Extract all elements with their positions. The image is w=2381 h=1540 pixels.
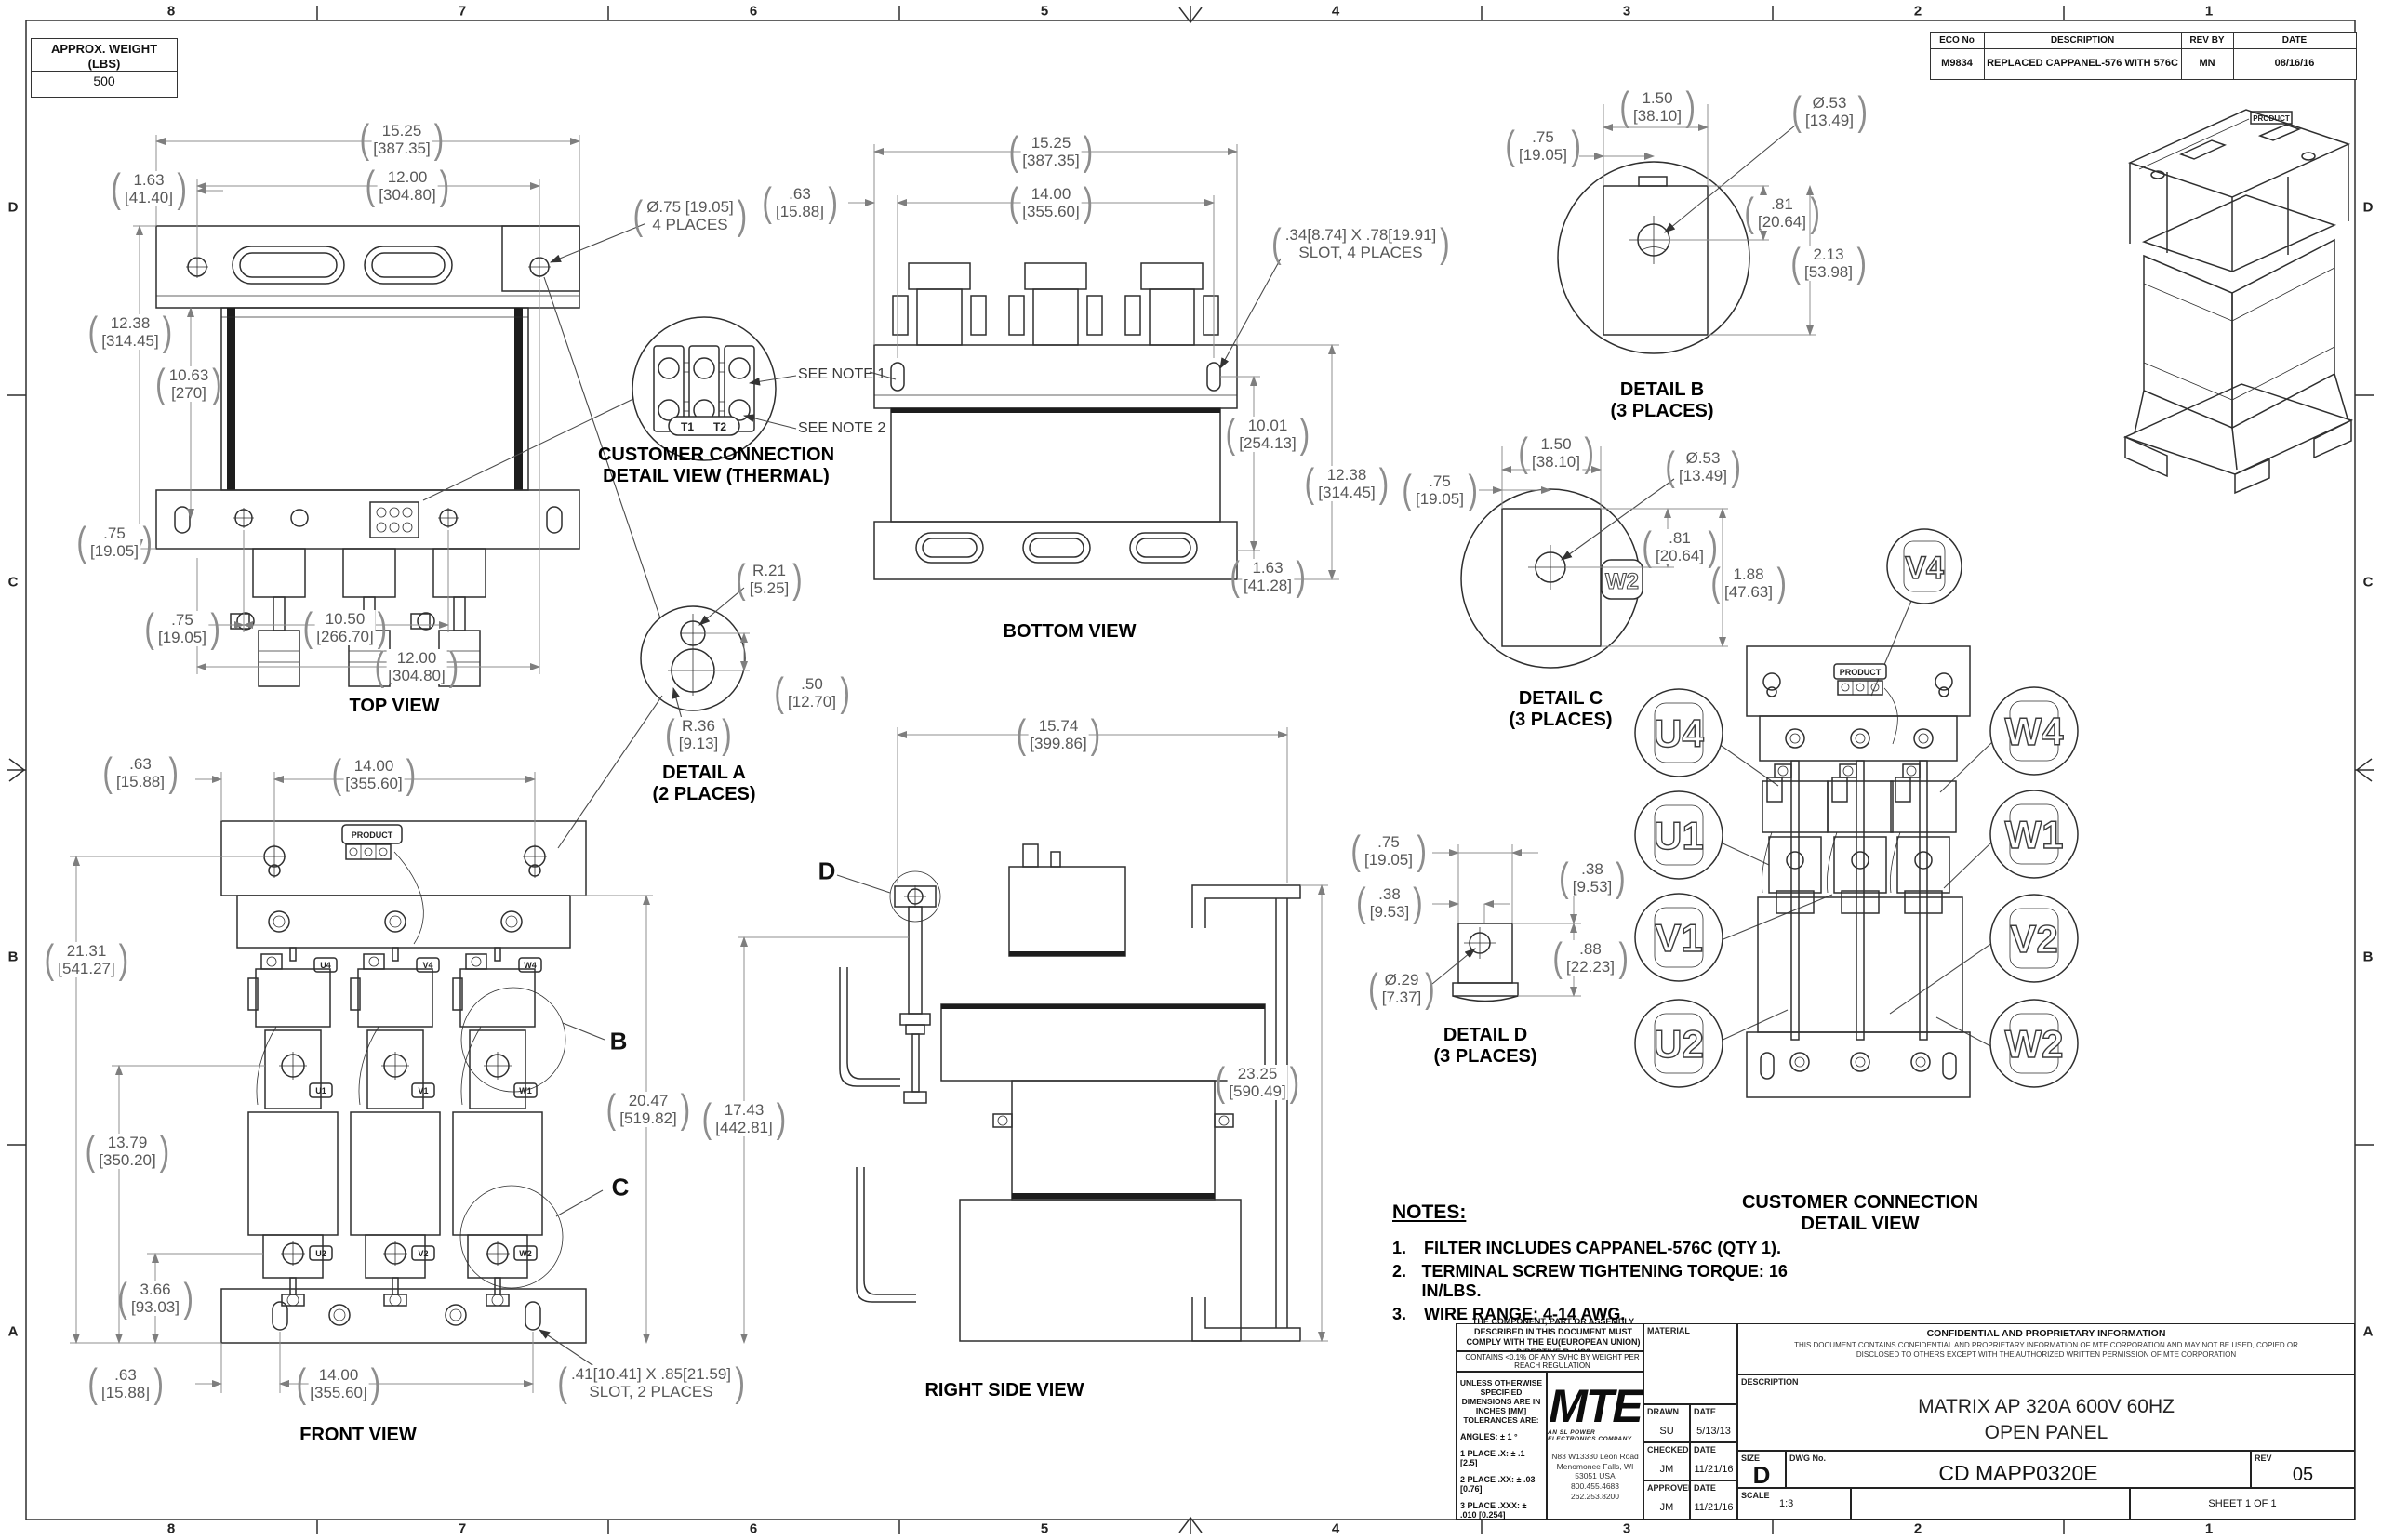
dim-dc-offset: (.75[19.05]): [1400, 467, 1479, 513]
dim-tv-width-inner: (12.00[304.80]): [364, 163, 452, 209]
cc-circle-u1: U1: [1654, 814, 1704, 857]
cc-circle-u2: U2: [1654, 1022, 1704, 1066]
zone-left-a: A: [8, 1324, 19, 1340]
detail-b-title: DETAIL B(3 PLACES): [1610, 379, 1713, 422]
dim-fv-width-top: (14.00[355.60]): [330, 751, 419, 798]
notes-title: NOTES:: [1392, 1201, 1820, 1224]
tb-approved-date: DATE11/21/16: [1690, 1480, 1737, 1520]
dim-dc-height: (1.88[47.63]): [1709, 560, 1788, 606]
thermal-detail-title: CUSTOMER CONNECTIONDETAIL VIEW (THERMAL): [598, 445, 834, 487]
cc-circle-u4: U4: [1654, 711, 1704, 755]
front-tag-v2: V2: [418, 1249, 428, 1258]
dim-db-offset: (.75[19.05]): [1503, 123, 1582, 169]
iso-product-label: PRODUCT: [2253, 114, 2290, 123]
eco-revision-table: ECO No DESCRIPTION REV BY DATE M9834 REP…: [1930, 32, 2356, 79]
front-view-title: FRONT VIEW: [299, 1425, 417, 1446]
mte-address: N83 W13330 Leon Road Menomonee Falls, WI…: [1548, 1452, 1643, 1501]
bottom-view-drawing: [874, 263, 1237, 579]
dim-dc-width: (1.50[38.10]): [1516, 430, 1595, 476]
zone-bot-1: 1: [2205, 1521, 2213, 1537]
dim-db-hole: (Ø.53[13.49]): [1789, 88, 1869, 135]
front-view-drawing: PRODUCT U4 V4 W4 U1 V1 W1 U2 V2 W2: [221, 821, 605, 1343]
right-side-view-title: RIGHT SIDE VIEW: [924, 1380, 1084, 1401]
tb-rev: REV05: [2251, 1451, 2355, 1488]
tb-tolerances: UNLESS OTHERWISE SPECIFIED DIMENSIONS AR…: [1456, 1372, 1547, 1520]
dim-tv-height-outer: (12.38[314.45]): [86, 309, 175, 355]
dim-rsv-width: (15.74[399.86]): [1015, 711, 1103, 758]
dim-tv-width-outer: (15.25[387.35]): [358, 116, 446, 163]
dim-rsv-height-mid: (17.43[442.81]): [700, 1095, 789, 1142]
dim-db-height: (2.13[53.98]): [1789, 240, 1868, 286]
front-tag-v4: V4: [422, 961, 432, 970]
dim-dd-height: (.88[22.23]): [1550, 935, 1629, 981]
dim-tv-height-inner: (10.63[270]): [153, 361, 224, 407]
zone-right-d: D: [2363, 200, 2374, 216]
dim-fv-offset-top: (.63[15.88]): [100, 750, 180, 796]
right-side-view-dims: [738, 727, 1328, 1343]
approx-weight-box: APPROX. WEIGHT(LBS) 500: [31, 38, 178, 98]
top-view-title: TOP VIEW: [349, 696, 439, 717]
dim-fv-width-bottom: (14.00[355.60]): [295, 1361, 383, 1407]
zone-left-c: C: [8, 575, 19, 591]
cc-circle-v1: V1: [1655, 916, 1702, 960]
zone-top-4: 4: [1332, 4, 1339, 20]
zone-left-d: D: [8, 200, 19, 216]
eco-date: 08/16/16: [2233, 48, 2357, 80]
zone-bot-4: 4: [1332, 1521, 1339, 1537]
eco-no: M9834: [1930, 48, 1985, 80]
dim-fv-height-mid: (13.79[350.20]): [84, 1128, 172, 1175]
description-line2: OPEN PANEL: [1738, 1420, 2354, 1446]
dim-fv-height-low: (3.66[93.03]): [115, 1275, 194, 1321]
zone-right-b: B: [2363, 949, 2374, 965]
tb-drawn: DRAWNSU: [1643, 1404, 1690, 1442]
callout-c: C: [612, 1174, 630, 1202]
eco-header-date: DATE: [2233, 32, 2357, 49]
tb-scale: SCALE1:3: [1737, 1488, 1851, 1520]
notes-block: NOTES: 1.FILTER INCLUDES CAPPANEL-576C (…: [1392, 1201, 1820, 1328]
dim-bv-height-inner: (10.01[254.13]): [1224, 411, 1312, 458]
zone-left-b: B: [8, 949, 19, 965]
isometric-view-drawing: PRODUCT: [2125, 110, 2351, 493]
dim-bv-width-outer: (15.25[387.35]): [1007, 128, 1096, 175]
zone-top-3: 3: [1623, 4, 1630, 20]
thermal-detail-drawing: T1 T2: [632, 317, 896, 460]
tb-sheet: SHEET 1 OF 1: [2130, 1488, 2355, 1520]
front-tag-u1: U1: [315, 1086, 326, 1095]
tb-reach: CONTAINS <0.1% OF ANY SVHC BY WEIGHT PER…: [1456, 1351, 1643, 1372]
zone-bot-2: 2: [1914, 1521, 1922, 1537]
drawing-sheet: T1 T2 W2 PRODUCT U4 V4 W4 U1 V1 W1 U2 V2…: [0, 0, 2381, 1540]
cc-circle-w2: W2: [2005, 1022, 2064, 1066]
dim-dd-hole: (Ø.29[7.37]): [1366, 965, 1437, 1012]
eco-header-revby: REV BY: [2181, 32, 2234, 49]
front-tag-v1: V1: [418, 1086, 428, 1095]
weight-value: 500: [32, 72, 177, 88]
dim-tv-offset-bottom: (.75[19.05]): [142, 605, 221, 652]
tb-confidential: CONFIDENTIAL AND PROPRIETARY INFORMATION…: [1737, 1323, 2355, 1374]
dim-db-width: (1.50[38.10]): [1617, 84, 1696, 130]
zone-top-2: 2: [1914, 4, 1922, 20]
cc-product-label: PRODUCT: [1840, 668, 1882, 677]
tb-size: SIZED: [1737, 1451, 1786, 1488]
cc-circle-w4: W4: [2005, 710, 2065, 753]
zone-right-c: C: [2363, 575, 2374, 591]
description-line1: MATRIX AP 320A 600V 60HZ: [1738, 1394, 2354, 1420]
note-3: 3.WIRE RANGE: 4-14 AWG.: [1392, 1305, 1820, 1324]
detail-c-title: DETAIL C(3 PLACES): [1509, 688, 1612, 731]
zone-bot-6: 6: [750, 1521, 757, 1537]
detail-c-w2-tag: W2: [1605, 569, 1639, 594]
zone-bot-5: 5: [1041, 1521, 1048, 1537]
dim-rsv-height-total: (23.25[590.49]): [1214, 1059, 1302, 1106]
dim-dc-upper: (.81[20.64]): [1640, 524, 1719, 570]
dim-bv-height-outer: (12.38[314.45]): [1303, 460, 1391, 507]
tb-checked: CHECKEDJM: [1643, 1442, 1690, 1480]
dim-dd-width: (.75[19.05]): [1349, 828, 1428, 874]
zone-right-a: A: [2363, 1324, 2374, 1340]
see-note-1-label: SEE NOTE 1: [798, 366, 885, 383]
callout-b: B: [610, 1028, 628, 1056]
front-tag-w4: W4: [524, 961, 537, 970]
tb-checked-date: DATE11/21/16: [1690, 1442, 1737, 1480]
zone-top-1: 1: [2205, 4, 2213, 20]
cc-circle-v2: V2: [2010, 917, 2057, 961]
tb-logo: MTE AN SL POWER ELECTRONICS COMPANY N83 …: [1547, 1372, 1643, 1520]
zone-bot-7: 7: [459, 1521, 466, 1537]
front-tag-u4: U4: [320, 961, 331, 970]
tb-material: MATERIAL: [1643, 1323, 1737, 1404]
tb-description: DESCRIPTION MATRIX AP 320A 600V 60HZ OPE…: [1737, 1374, 2355, 1451]
eco-header-no: ECO No: [1930, 32, 1985, 49]
tb-approved: APPROVEDJM: [1643, 1480, 1690, 1520]
dim-tv-offset-top: (1.63[41.40]): [109, 166, 188, 212]
dim-fv-offset-bottom: (.63[15.88]): [86, 1361, 165, 1407]
mte-logo: MTE: [1549, 1386, 1642, 1427]
dim-dd-offset-right: (.38[9.53]): [1557, 855, 1628, 901]
eco-revby: MN: [2181, 48, 2234, 80]
dim-fv-height-total: (21.31[541.27]): [43, 936, 131, 983]
dim-bv-offset-left: (.63[15.88]): [760, 179, 839, 226]
dim-bv-width-inner: (14.00[355.60]): [1007, 179, 1096, 226]
detail-d-title: DETAIL D(3 PLACES): [1433, 1025, 1536, 1068]
dim-da-offset: (.50[12.70]): [772, 670, 851, 716]
note-1: 1.FILTER INCLUDES CAPPANEL-576C (QTY 1).: [1392, 1239, 1820, 1258]
dim-bv-slot: (.34[8.74] X .78[19.91]SLOT, 4 PLACES): [1270, 220, 1452, 267]
front-tag-w2: W2: [519, 1249, 532, 1258]
mte-tagline: AN SL POWER ELECTRONICS COMPANY: [1548, 1429, 1643, 1442]
dim-tv-width-bottom: (12.00[304.80]): [373, 644, 461, 690]
dim-fv-slot: (.41[10.41] X .85[21.59]SLOT, 2 PLACES): [555, 1360, 746, 1406]
callout-d: D: [818, 857, 836, 886]
weight-unit: (LBS): [88, 57, 121, 71]
eco-description: REPLACED CAPPANEL-576 WITH 576C: [1984, 48, 2182, 80]
zone-bot-8: 8: [167, 1521, 175, 1537]
see-note-2-label: SEE NOTE 2: [798, 420, 885, 437]
tb-drawn-date: DATE5/13/13: [1690, 1404, 1737, 1442]
cc-detail-drawing: PRODUCT U4 U1 V1 U2 W4 W1 V2 W2 V4: [1635, 529, 2078, 1097]
front-product-label: PRODUCT: [352, 830, 393, 840]
dim-bv-offset-bottom: (1.63[41.28]): [1228, 553, 1307, 600]
tb-dwg-no: DWG No.CD MAPP0320E: [1786, 1451, 2251, 1488]
front-tag-u2: U2: [315, 1249, 326, 1258]
zone-top-7: 7: [459, 4, 466, 20]
zone-top-6: 6: [750, 4, 757, 20]
dim-tv-holes: (Ø.75 [19.05]4 PLACES): [632, 192, 750, 239]
dim-dd-offset-left: (.38[9.53]): [1354, 880, 1425, 926]
note-2: 2.TERMINAL SCREW TIGHTENING TORQUE: 16 I…: [1392, 1262, 1820, 1301]
thermal-t1-label: T1: [681, 420, 694, 433]
dim-rsv-height-front: (20.47[519.82]): [605, 1086, 693, 1133]
dim-tv-offset-left: (.75[19.05]): [74, 519, 153, 565]
dim-db-upper: (.81[20.64]): [1742, 190, 1821, 236]
dim-dc-hole: (Ø.53[13.49]): [1663, 444, 1742, 490]
dim-da-r-bottom: (R.36[9.13]): [663, 711, 734, 758]
detail-a-title: DETAIL A(2 PLACES): [652, 763, 755, 805]
zone-top-5: 5: [1041, 4, 1048, 20]
thermal-t2-label: T2: [713, 420, 726, 433]
tb-scale-spacer: [1851, 1488, 2130, 1520]
zone-bot-3: 3: [1623, 1521, 1630, 1537]
eco-header-desc: DESCRIPTION: [1984, 32, 2182, 49]
dim-da-r-top: (R.21[5.25]): [734, 556, 805, 603]
bottom-view-title: BOTTOM VIEW: [1004, 621, 1137, 643]
cc-circle-w1: W1: [2005, 813, 2064, 856]
cc-circle-v4: V4: [1905, 551, 1944, 586]
zone-top-8: 8: [167, 4, 175, 20]
weight-title: APPROX. WEIGHT: [51, 42, 157, 56]
